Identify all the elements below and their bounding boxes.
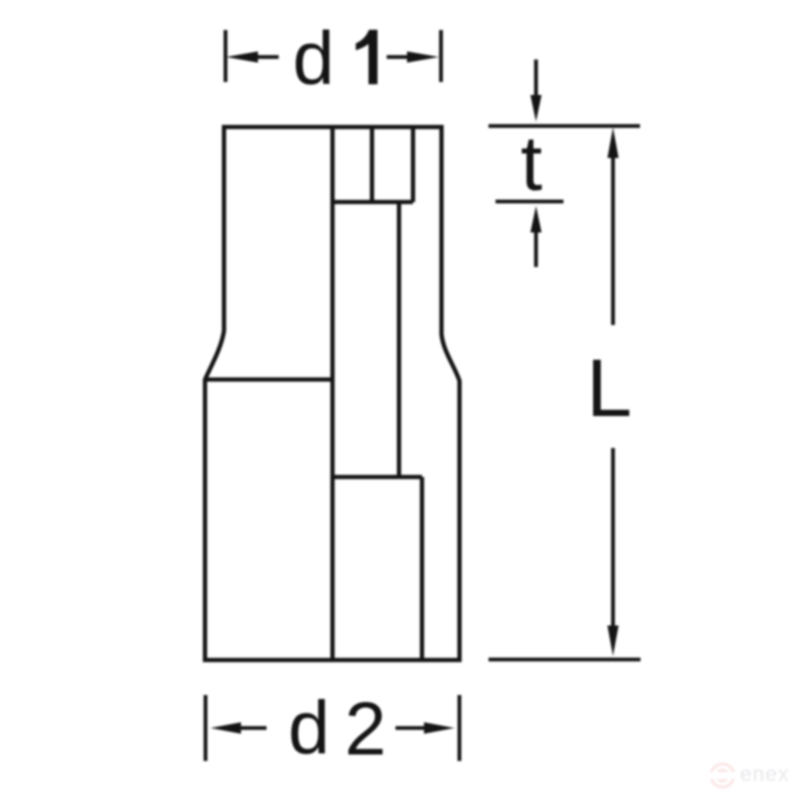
svg-text:L: L: [586, 343, 632, 434]
svg-text:d: d: [293, 16, 335, 100]
svg-text:d: d: [288, 686, 330, 770]
svg-text:enex: enex: [740, 763, 790, 786]
svg-text:2: 2: [345, 687, 387, 771]
svg-text:t: t: [521, 119, 543, 207]
